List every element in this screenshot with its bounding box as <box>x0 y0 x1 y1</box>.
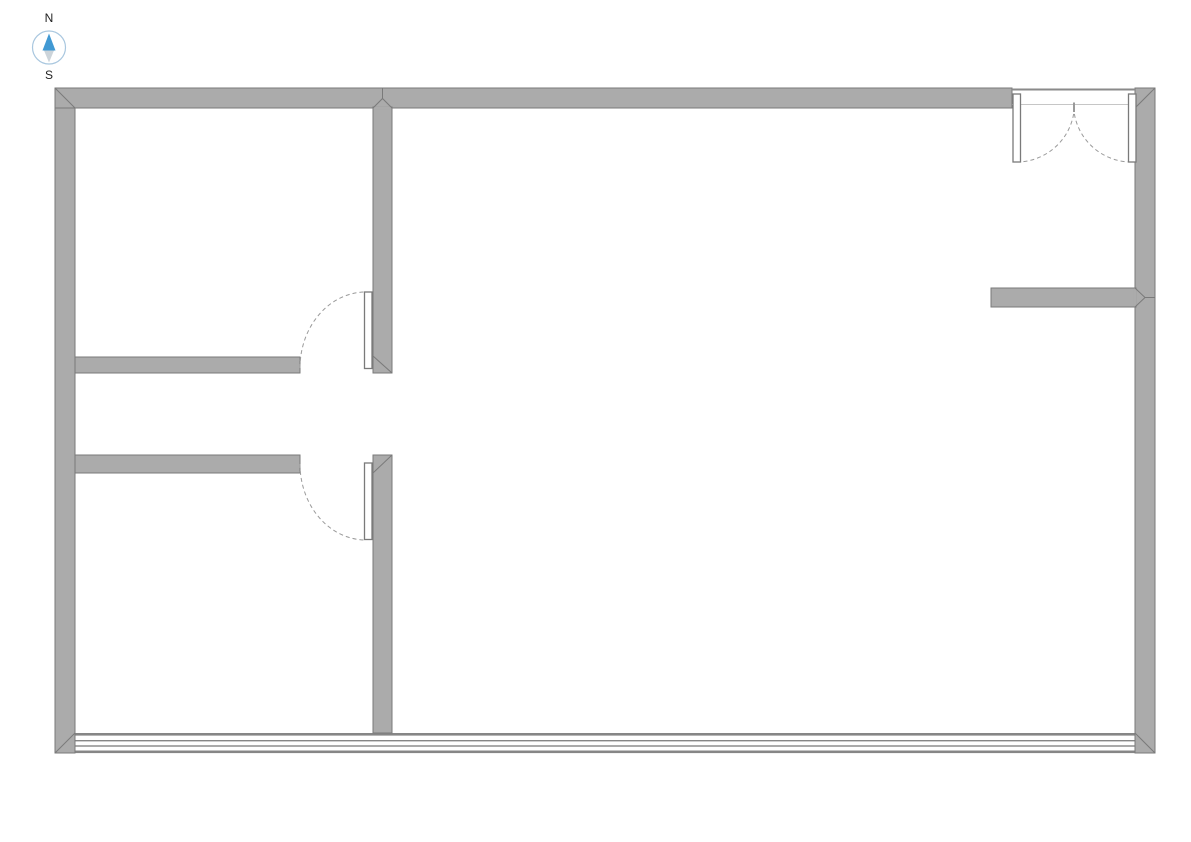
wall-junction-patch <box>374 107 391 110</box>
upper-door-swing-arc <box>300 292 366 368</box>
window-line <box>75 740 1135 741</box>
double-door-right-swing-arc <box>1074 104 1132 162</box>
interior-vertical-wall-upper[interactable] <box>373 107 392 373</box>
upper-door-leaf[interactable] <box>365 292 373 369</box>
compass-north-label: N <box>45 11 54 25</box>
upper-interior-door[interactable] <box>300 292 372 369</box>
interior-vertical-wall-lower[interactable] <box>373 455 392 733</box>
lower-interior-door[interactable] <box>300 463 372 540</box>
wall-junction-patch <box>1134 289 1137 306</box>
lower-door-swing-arc <box>300 464 366 540</box>
double-door-right-leaf[interactable] <box>1129 94 1137 162</box>
window-strip[interactable] <box>75 733 1135 753</box>
lower-wall-stub[interactable] <box>75 455 300 473</box>
window-line <box>75 733 1135 736</box>
double-entry-door[interactable] <box>1012 90 1136 163</box>
compass-icon: N S <box>33 11 66 82</box>
floor-plan-canvas[interactable]: N S <box>0 0 1191 842</box>
lower-door-leaf[interactable] <box>365 463 373 540</box>
wall-miter-joints <box>55 88 1155 753</box>
double-door-left-swing-arc <box>1017 104 1075 162</box>
window-line <box>75 751 1135 754</box>
top-exterior-wall[interactable] <box>55 88 1012 108</box>
window-line <box>75 745 1135 746</box>
right-partition-wall[interactable] <box>991 288 1136 307</box>
compass-south-label: S <box>45 68 53 82</box>
floor-plan-drawing: N S <box>0 0 1191 842</box>
upper-wall-stub[interactable] <box>75 357 300 373</box>
right-exterior-wall[interactable] <box>1135 88 1155 753</box>
double-door-left-leaf[interactable] <box>1013 94 1021 162</box>
left-exterior-wall[interactable] <box>55 88 75 753</box>
